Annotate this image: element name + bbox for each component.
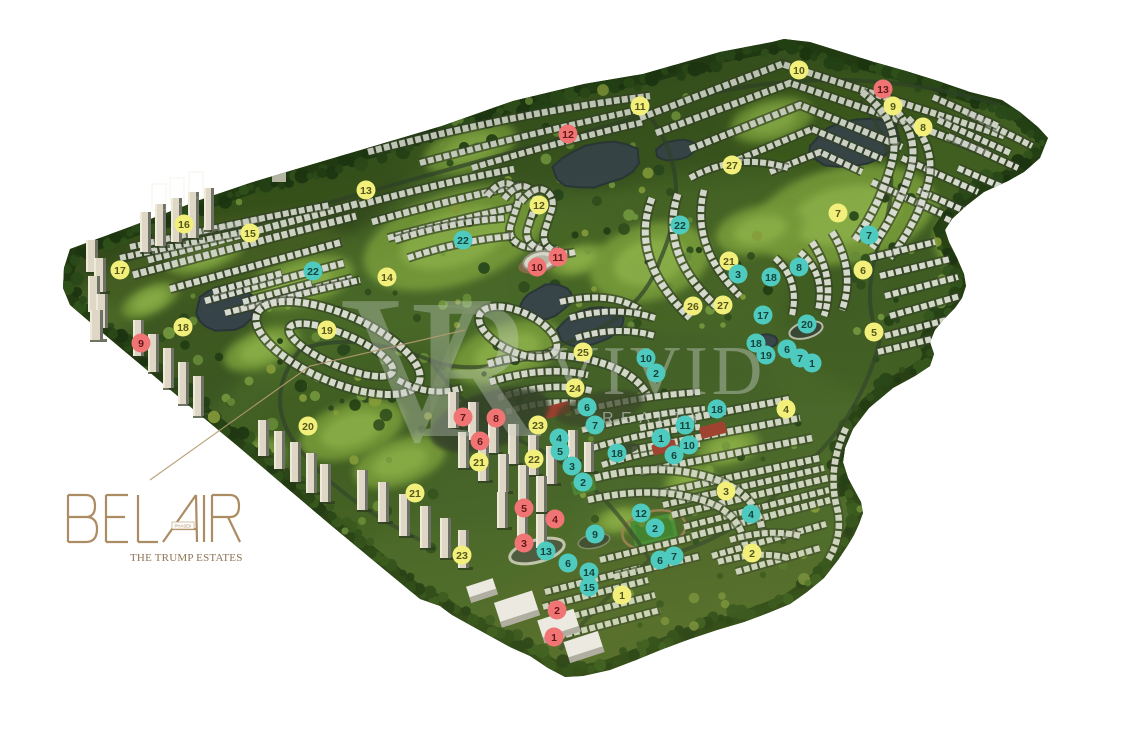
svg-text:6: 6 bbox=[657, 555, 663, 567]
svg-text:PHASEII: PHASEII bbox=[175, 523, 192, 528]
svg-text:5: 5 bbox=[521, 503, 527, 515]
svg-text:4: 4 bbox=[783, 404, 789, 416]
svg-text:22: 22 bbox=[307, 266, 319, 278]
svg-text:14: 14 bbox=[583, 567, 595, 579]
svg-text:8: 8 bbox=[920, 122, 926, 134]
svg-text:18: 18 bbox=[711, 404, 723, 416]
svg-text:1: 1 bbox=[619, 590, 625, 602]
svg-text:3: 3 bbox=[569, 461, 575, 473]
svg-text:4: 4 bbox=[552, 514, 558, 526]
svg-text:1: 1 bbox=[809, 358, 815, 370]
svg-text:12: 12 bbox=[562, 129, 574, 141]
svg-text:16: 16 bbox=[178, 219, 190, 231]
svg-text:6: 6 bbox=[784, 344, 790, 356]
svg-text:2: 2 bbox=[554, 605, 560, 617]
svg-text:5: 5 bbox=[871, 327, 877, 339]
svg-text:18: 18 bbox=[611, 448, 623, 460]
svg-text:11: 11 bbox=[634, 101, 645, 113]
svg-text:12: 12 bbox=[635, 508, 647, 520]
svg-text:13: 13 bbox=[877, 84, 889, 96]
svg-text:7: 7 bbox=[797, 353, 803, 365]
svg-text:15: 15 bbox=[583, 582, 595, 594]
svg-text:17: 17 bbox=[757, 310, 769, 322]
svg-text:3: 3 bbox=[521, 538, 527, 550]
svg-text:2: 2 bbox=[749, 548, 755, 560]
svg-text:8: 8 bbox=[796, 262, 802, 274]
svg-text:3: 3 bbox=[723, 486, 729, 498]
svg-text:11: 11 bbox=[552, 252, 563, 264]
svg-text:2: 2 bbox=[580, 477, 586, 489]
svg-text:3: 3 bbox=[735, 269, 741, 281]
svg-text:7: 7 bbox=[835, 208, 841, 220]
svg-text:10: 10 bbox=[531, 262, 543, 274]
svg-text:19: 19 bbox=[321, 325, 333, 337]
svg-text:THE TRUMP ESTATES: THE TRUMP ESTATES bbox=[130, 552, 243, 564]
svg-text:1: 1 bbox=[551, 632, 557, 644]
svg-text:13: 13 bbox=[540, 546, 552, 558]
svg-text:23: 23 bbox=[456, 550, 468, 562]
svg-text:5: 5 bbox=[557, 446, 563, 458]
svg-text:2: 2 bbox=[652, 523, 658, 535]
svg-text:27: 27 bbox=[717, 300, 729, 312]
svg-text:27: 27 bbox=[726, 160, 738, 172]
svg-text:21: 21 bbox=[473, 457, 485, 469]
svg-text:20: 20 bbox=[801, 319, 813, 331]
svg-text:7: 7 bbox=[866, 230, 872, 242]
svg-text:18: 18 bbox=[765, 272, 777, 284]
svg-text:14: 14 bbox=[381, 272, 393, 284]
svg-text:6: 6 bbox=[584, 402, 590, 414]
svg-text:9: 9 bbox=[138, 338, 144, 350]
svg-text:7: 7 bbox=[460, 412, 466, 424]
svg-text:6: 6 bbox=[477, 436, 483, 448]
svg-text:17: 17 bbox=[114, 265, 126, 277]
svg-text:11: 11 bbox=[679, 420, 690, 432]
svg-text:12: 12 bbox=[533, 200, 545, 212]
svg-text:19: 19 bbox=[760, 350, 772, 362]
svg-text:6: 6 bbox=[671, 450, 677, 462]
svg-text:18: 18 bbox=[177, 322, 189, 334]
svg-text:7: 7 bbox=[671, 551, 677, 563]
svg-text:22: 22 bbox=[674, 220, 686, 232]
svg-text:4: 4 bbox=[748, 509, 754, 521]
svg-text:13: 13 bbox=[360, 185, 372, 197]
svg-text:20: 20 bbox=[302, 421, 314, 433]
svg-text:21: 21 bbox=[409, 488, 421, 500]
svg-text:9: 9 bbox=[592, 529, 598, 541]
svg-text:10: 10 bbox=[793, 65, 805, 77]
svg-text:26: 26 bbox=[687, 301, 699, 313]
svg-text:6: 6 bbox=[860, 265, 866, 277]
svg-text:23: 23 bbox=[532, 420, 544, 432]
svg-text:10: 10 bbox=[640, 353, 652, 365]
svg-text:1: 1 bbox=[658, 433, 664, 445]
svg-text:9: 9 bbox=[890, 101, 896, 113]
svg-text:8: 8 bbox=[493, 413, 499, 425]
svg-text:22: 22 bbox=[528, 454, 540, 466]
svg-text:10: 10 bbox=[683, 440, 695, 452]
svg-text:6: 6 bbox=[565, 558, 571, 570]
svg-text:2: 2 bbox=[653, 368, 659, 380]
svg-text:24: 24 bbox=[569, 383, 581, 395]
svg-text:22: 22 bbox=[457, 235, 469, 247]
svg-text:15: 15 bbox=[244, 228, 256, 240]
svg-text:7: 7 bbox=[592, 420, 598, 432]
svg-text:25: 25 bbox=[577, 347, 589, 359]
